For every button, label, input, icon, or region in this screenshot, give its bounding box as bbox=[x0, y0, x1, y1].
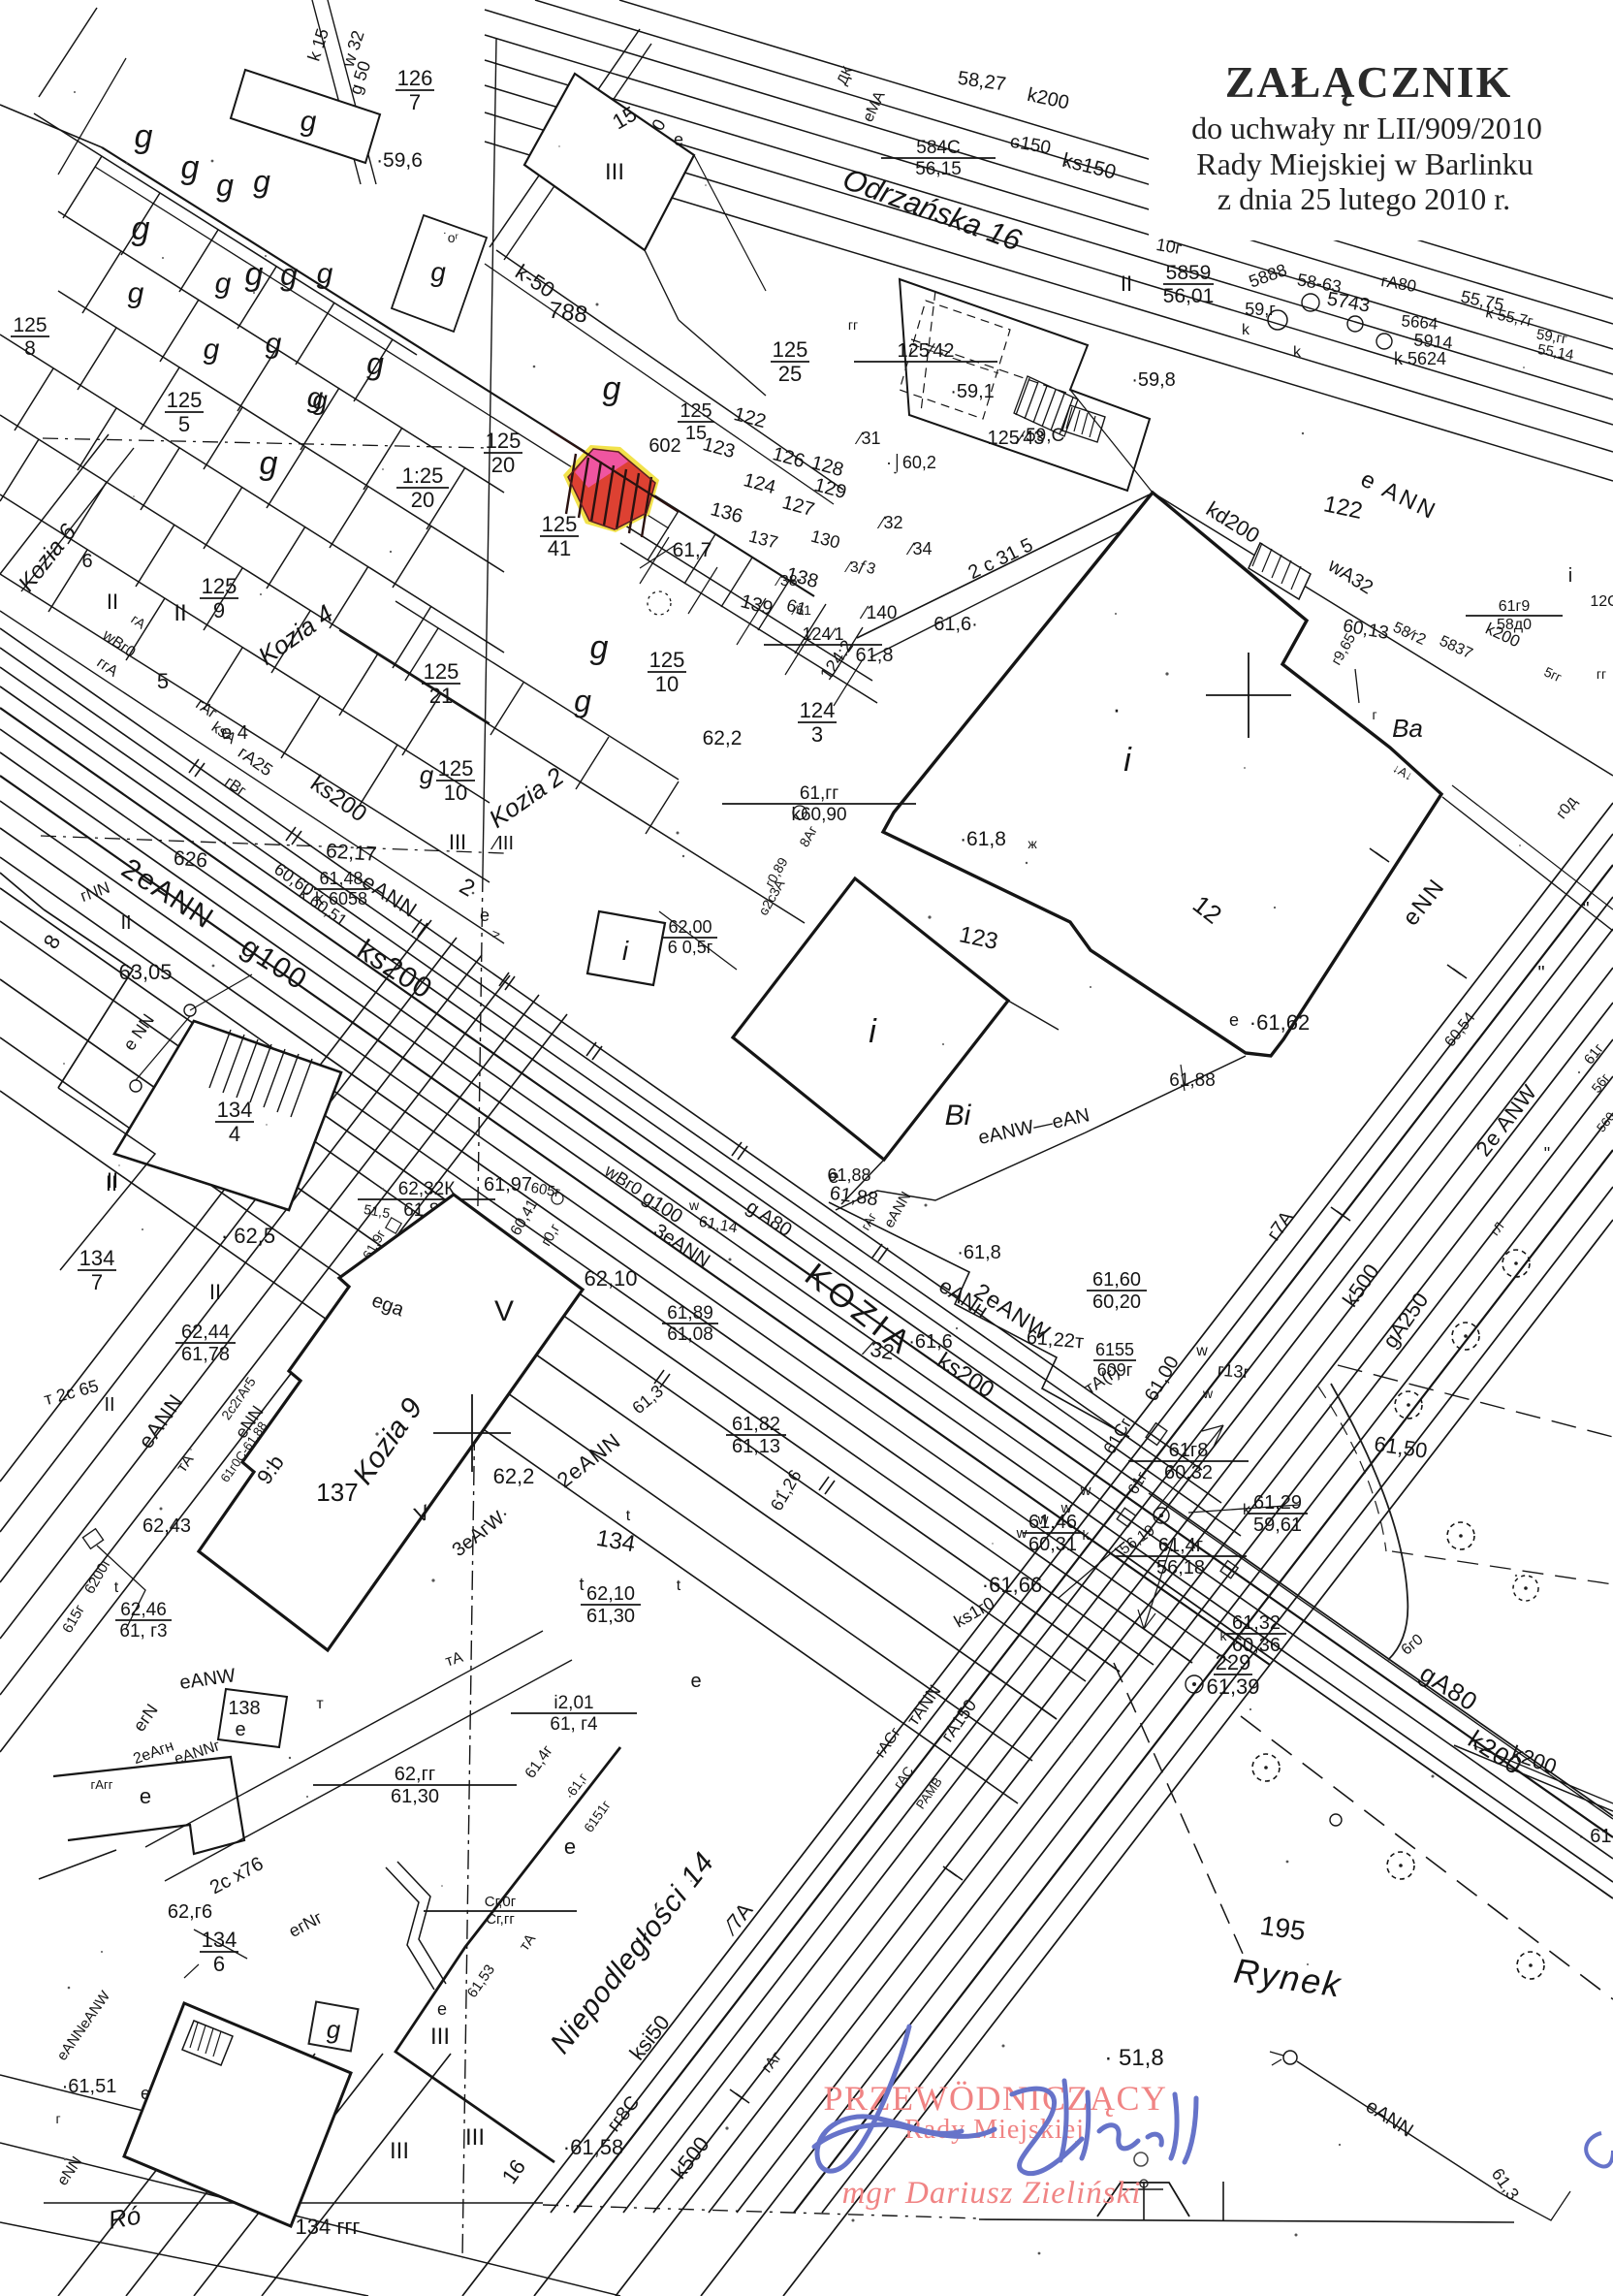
svg-text:g: g bbox=[245, 256, 264, 293]
svg-text:61,30: 61,30 bbox=[586, 1606, 635, 1627]
svg-text:w: w bbox=[1080, 1483, 1091, 1499]
svg-text:·61,8: ·61,8 bbox=[957, 1242, 1001, 1263]
svg-text:61,08: 61,08 bbox=[667, 1324, 713, 1345]
svg-text:e: e bbox=[564, 1834, 576, 1859]
svg-text:62,17: 62,17 bbox=[325, 840, 377, 866]
svg-text:k: k bbox=[1242, 322, 1250, 338]
svg-text:гАгг: гАгг bbox=[91, 1777, 113, 1792]
svg-text:II: II bbox=[104, 1394, 114, 1416]
svg-text:·61,8: ·61,8 bbox=[960, 828, 1006, 850]
svg-text:e: e bbox=[690, 1671, 701, 1692]
svg-text:126: 126 bbox=[397, 66, 433, 90]
svg-text:62,32К: 62,32К bbox=[398, 1179, 456, 1199]
svg-text:1:25: 1:25 bbox=[402, 463, 444, 488]
svg-text:3: 3 bbox=[811, 722, 823, 747]
svg-text:g: g bbox=[327, 2015, 341, 2044]
svg-text:61,78: 61,78 bbox=[181, 1344, 230, 1365]
svg-text:k 5624: k 5624 bbox=[1394, 349, 1446, 368]
svg-text:12С: 12С bbox=[1590, 593, 1613, 610]
svg-text:Rady Miejskiej w Barlinku: Rady Miejskiej w Barlinku bbox=[1196, 146, 1534, 181]
svg-text:134 ггг: 134 ггг bbox=[296, 2215, 361, 2239]
svg-text:k60,90: k60,90 bbox=[791, 805, 846, 825]
svg-text:62,2: 62,2 bbox=[493, 1464, 535, 1488]
svg-text:˙οʳ: ˙οʳ bbox=[443, 230, 459, 245]
svg-text:∕32: ∕32 bbox=[876, 513, 902, 532]
svg-text:і2,01: і2,01 bbox=[553, 1693, 593, 1713]
svg-text:t: t bbox=[579, 1575, 584, 1594]
svg-text:˃: ˃ bbox=[492, 926, 500, 941]
svg-text:61г9: 61г9 bbox=[1499, 598, 1531, 615]
svg-text:e: e bbox=[140, 1784, 151, 1808]
svg-text:II: II bbox=[209, 1280, 221, 1304]
svg-text:60,31: 60,31 bbox=[1028, 1534, 1077, 1555]
svg-text:6: 6 bbox=[81, 551, 92, 572]
svg-text:· 62,5: · 62,5 bbox=[221, 1224, 275, 1248]
svg-text:Ró: Ró bbox=[106, 2200, 142, 2234]
svg-text:∕38‧: ∕38‧ bbox=[774, 573, 803, 590]
svg-text:·61,58: ·61,58 bbox=[563, 2135, 623, 2159]
svg-text:g: g bbox=[574, 684, 591, 718]
svg-text:8: 8 bbox=[24, 337, 36, 360]
svg-text:61,89: 61,89 bbox=[667, 1303, 713, 1323]
svg-text:гг: гг bbox=[1597, 666, 1606, 682]
svg-text:w: w bbox=[1060, 1500, 1072, 1516]
svg-text:584С: 584С bbox=[916, 138, 960, 158]
svg-text:61,60: 61,60 bbox=[1092, 1269, 1141, 1291]
svg-text:g: g bbox=[317, 258, 333, 290]
svg-text:III: III bbox=[465, 2124, 485, 2151]
svg-text:·61,51: ·61,51 bbox=[62, 2076, 117, 2097]
svg-text:5: 5 bbox=[178, 412, 190, 436]
svg-text:III: III bbox=[430, 2024, 450, 2050]
svg-text:Сг,гг: Сг,гг bbox=[486, 1911, 515, 1928]
svg-text:626: 626 bbox=[173, 847, 208, 873]
svg-text:7: 7 bbox=[91, 1270, 103, 1294]
svg-text:6155: 6155 bbox=[1095, 1340, 1134, 1359]
svg-text:4: 4 bbox=[229, 1122, 240, 1146]
svg-text:10: 10 bbox=[655, 672, 679, 696]
svg-text:Ba: Ba bbox=[1392, 714, 1423, 743]
svg-text:788: 788 bbox=[547, 297, 588, 328]
svg-text:g: g bbox=[216, 168, 234, 203]
svg-text:w: w bbox=[1195, 1343, 1208, 1359]
svg-text:g: g bbox=[366, 346, 384, 381]
svg-text:g: g bbox=[430, 257, 446, 287]
svg-text:g: g bbox=[128, 277, 144, 309]
svg-text:125: 125 bbox=[13, 314, 47, 336]
svg-text:61,82: 61,82 bbox=[732, 1414, 780, 1435]
svg-text:10: 10 bbox=[444, 781, 467, 805]
svg-text:g: g bbox=[260, 445, 278, 482]
svg-text:56,01: 56,01 bbox=[1163, 285, 1215, 307]
svg-text:∕31: ∕31 bbox=[854, 429, 880, 448]
svg-text:гг: гг bbox=[848, 317, 858, 333]
svg-text:61,13: 61,13 bbox=[732, 1436, 780, 1457]
svg-text:g: g bbox=[132, 210, 150, 247]
svg-text:125∕42: 125∕42 bbox=[898, 340, 955, 362]
svg-text:125: 125 bbox=[649, 648, 685, 672]
svg-text:g: g bbox=[300, 106, 317, 138]
svg-text:e: e bbox=[235, 1719, 245, 1740]
svg-text:61, г3: 61, г3 bbox=[119, 1621, 167, 1642]
svg-text:41: 41 bbox=[548, 536, 571, 560]
svg-text:125: 125 bbox=[202, 574, 237, 598]
svg-text:III: III bbox=[449, 830, 466, 854]
svg-text:i: i bbox=[622, 936, 629, 966]
svg-text:61,88: 61,88 bbox=[827, 1165, 870, 1185]
svg-text:II: II bbox=[120, 912, 131, 934]
svg-text:125: 125 bbox=[773, 337, 808, 362]
svg-text:62,2: 62,2 bbox=[703, 727, 743, 749]
svg-text:·⌡60,2: ·⌡60,2 bbox=[886, 453, 936, 474]
svg-text:t: t bbox=[626, 1508, 631, 1524]
svg-text:PRZEWÖDNICZĄCY: PRZEWÖDNICZĄCY bbox=[824, 2079, 1168, 2118]
svg-text:195: 195 bbox=[1258, 1910, 1308, 1946]
svg-text:g: g bbox=[215, 268, 232, 300]
svg-text:w: w bbox=[1016, 1525, 1028, 1542]
svg-text:g: g bbox=[312, 385, 328, 415]
svg-text:62,00: 62,00 bbox=[668, 917, 712, 937]
svg-text:e: e bbox=[480, 906, 490, 925]
svg-text:e: e bbox=[1229, 1010, 1239, 1030]
svg-text:·59,6: ·59,6 bbox=[376, 149, 423, 172]
svg-text:61,4г: 61,4г bbox=[1158, 1535, 1203, 1556]
svg-text:61,97: 61,97 bbox=[484, 1174, 532, 1196]
svg-text:k: k bbox=[1220, 1628, 1228, 1643]
svg-text:g: g bbox=[590, 629, 609, 666]
svg-text:60,32: 60,32 bbox=[1164, 1462, 1213, 1483]
svg-text:58д0: 58д0 bbox=[1497, 617, 1532, 633]
svg-text:": " bbox=[1544, 1144, 1550, 1164]
svg-text:g: g bbox=[420, 760, 434, 789]
svg-text:61,30: 61,30 bbox=[391, 1786, 439, 1807]
svg-text:k: k bbox=[1293, 344, 1302, 361]
svg-text:7: 7 bbox=[409, 90, 421, 114]
svg-text:125: 125 bbox=[486, 429, 522, 453]
svg-text:·59,8: ·59,8 bbox=[1131, 369, 1176, 391]
svg-text:60,20: 60,20 bbox=[1092, 1291, 1141, 1313]
svg-text:125: 125 bbox=[424, 659, 459, 684]
svg-text:61,32: 61,32 bbox=[1232, 1612, 1281, 1634]
svg-text:20: 20 bbox=[491, 453, 515, 477]
svg-text:62,46: 62,46 bbox=[120, 1600, 167, 1620]
svg-text:125: 125 bbox=[438, 756, 474, 781]
svg-text:138: 138 bbox=[228, 1698, 260, 1719]
svg-text:г: г bbox=[55, 2111, 60, 2126]
svg-text:20: 20 bbox=[411, 488, 434, 512]
svg-text:V: V bbox=[494, 1295, 514, 1327]
svg-text:62,г6: 62,г6 bbox=[168, 1901, 212, 1923]
svg-text:137: 137 bbox=[316, 1478, 358, 1507]
svg-text:· 61,: · 61, bbox=[1578, 1826, 1613, 1847]
svg-text:II: II bbox=[174, 600, 186, 626]
svg-text:125: 125 bbox=[542, 512, 578, 536]
svg-text:w: w bbox=[688, 1197, 700, 1213]
svg-text:II: II bbox=[1121, 271, 1132, 296]
svg-text:Cг,0г: Cг,0г bbox=[485, 1894, 517, 1910]
svg-text:59,г: 59,г bbox=[1245, 300, 1276, 319]
svg-text:61,39: 61,39 bbox=[1206, 1674, 1259, 1699]
svg-text:56,15: 56,15 bbox=[915, 159, 962, 179]
svg-text:134: 134 bbox=[217, 1098, 253, 1122]
svg-text:62,44: 62,44 bbox=[181, 1322, 230, 1343]
svg-text:·: · bbox=[1113, 694, 1122, 723]
svg-text:61г8: 61г8 bbox=[1169, 1440, 1209, 1461]
svg-text:∕61: ∕61 bbox=[791, 602, 811, 618]
svg-text:III: III bbox=[605, 159, 624, 185]
svg-text:21: 21 bbox=[429, 684, 453, 708]
svg-text:62,10: 62,10 bbox=[584, 1266, 637, 1291]
svg-text:229: 229 bbox=[1216, 1650, 1251, 1674]
svg-text:т: т bbox=[316, 1696, 324, 1712]
svg-text:134: 134 bbox=[202, 1928, 237, 1952]
svg-text:61,6·: 61,6· bbox=[933, 614, 978, 635]
svg-text:15: 15 bbox=[685, 423, 707, 444]
svg-text:t: t bbox=[114, 1579, 119, 1596]
svg-text:g: g bbox=[603, 370, 621, 407]
svg-text:134: 134 bbox=[79, 1246, 115, 1270]
svg-text:II: II bbox=[107, 590, 118, 614]
svg-text:62,гг: 62,гг bbox=[395, 1764, 435, 1785]
svg-text:g: g bbox=[135, 118, 153, 155]
svg-text:·59,С: ·59,С bbox=[1020, 426, 1064, 446]
svg-text:k 6058: k 6058 bbox=[315, 889, 367, 909]
svg-text:61, г4: 61, г4 bbox=[550, 1714, 598, 1735]
svg-text:9: 9 bbox=[213, 598, 225, 622]
svg-text:mgr Dariusz Zieliński: mgr Dariusz Zieliński bbox=[842, 2176, 1142, 2211]
svg-text:61,29: 61,29 bbox=[1253, 1492, 1302, 1514]
svg-text:г: г bbox=[1372, 707, 1376, 722]
svg-text:": " bbox=[1582, 899, 1589, 920]
svg-text:59,61: 59,61 bbox=[1253, 1515, 1302, 1536]
svg-text:g: g bbox=[266, 328, 282, 360]
svg-text:5859: 5859 bbox=[1166, 262, 1212, 284]
svg-text:·61,62: ·61,62 bbox=[1249, 1010, 1310, 1035]
svg-text:· 51,8: · 51,8 bbox=[1104, 2045, 1163, 2071]
svg-text:": " bbox=[1537, 963, 1544, 984]
svg-text:609г: 609г bbox=[1097, 1360, 1133, 1380]
svg-text:ж: ж bbox=[1028, 836, 1037, 851]
svg-text:125: 125 bbox=[167, 388, 203, 412]
svg-text:III: III bbox=[390, 2138, 409, 2164]
svg-text:5: 5 bbox=[157, 669, 169, 693]
svg-text:g: g bbox=[204, 334, 220, 366]
svg-text:124: 124 bbox=[800, 698, 836, 722]
svg-text:е: е bbox=[437, 1999, 447, 2019]
svg-text:i: i bbox=[1568, 565, 1572, 587]
svg-text:g: g bbox=[280, 257, 298, 292]
svg-text:w: w bbox=[1202, 1386, 1214, 1401]
svg-text:ZAŁĄCZNIK: ZAŁĄCZNIK bbox=[1225, 57, 1513, 107]
svg-text:125: 125 bbox=[680, 400, 712, 422]
svg-text:6: 6 bbox=[213, 1952, 225, 1976]
svg-text:k: k bbox=[1083, 1527, 1091, 1543]
svg-text:II: II bbox=[107, 1168, 118, 1193]
svg-text:602: 602 bbox=[648, 435, 680, 457]
svg-text:∕34: ∕34 bbox=[905, 539, 932, 558]
svg-text:62,10: 62,10 bbox=[586, 1583, 635, 1605]
svg-text:g: g bbox=[253, 164, 270, 199]
svg-text:25: 25 bbox=[778, 362, 802, 386]
svg-text:61,48: 61,48 bbox=[319, 869, 363, 888]
svg-text:z dnia 25 lutego 2010 r.: z dnia 25 lutego 2010 r. bbox=[1218, 181, 1510, 216]
svg-text:w: w bbox=[1037, 1512, 1049, 1528]
svg-text:do uchwały nr LII/909/2010: do uchwały nr LII/909/2010 bbox=[1191, 111, 1542, 145]
svg-text:6 0,5г: 6 0,5г bbox=[668, 938, 713, 957]
svg-text:г13г: г13г bbox=[1217, 1360, 1250, 1383]
svg-text:e: e bbox=[674, 130, 683, 149]
svg-text:k: k bbox=[1243, 1502, 1251, 1518]
svg-text:t: t bbox=[677, 1578, 681, 1594]
svg-text:·61,66: ·61,66 bbox=[982, 1573, 1042, 1597]
svg-text:Bi: Bi bbox=[945, 1100, 972, 1132]
svg-text:61,88: 61,88 bbox=[1169, 1070, 1216, 1091]
svg-text:61,гг: 61,гг bbox=[800, 783, 838, 804]
svg-text:62,43: 62,43 bbox=[142, 1515, 191, 1537]
svg-text:g: g bbox=[181, 149, 200, 186]
svg-text:·59,1: ·59,1 bbox=[950, 381, 995, 402]
